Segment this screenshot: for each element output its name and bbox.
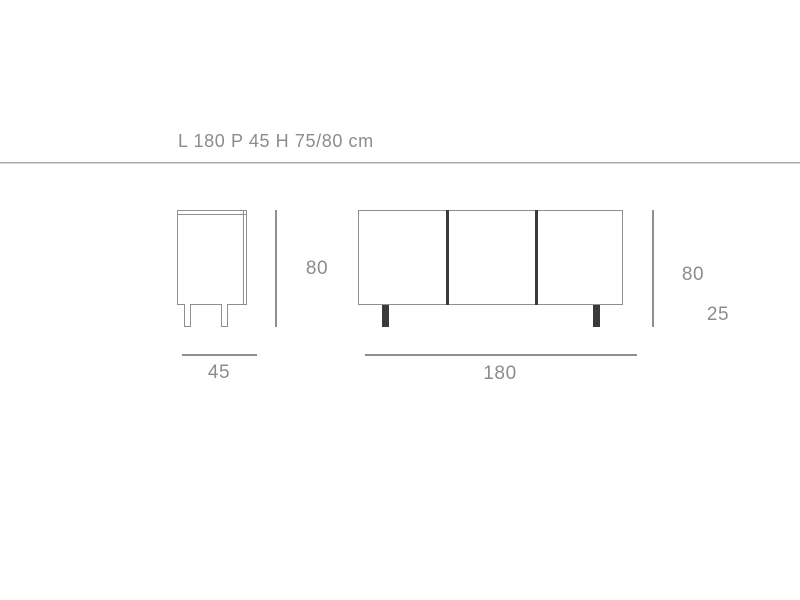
front-view-left-leg [382, 305, 389, 327]
front-view-body-outline [358, 210, 623, 305]
front-view-leg-height-label: 25 [696, 304, 740, 326]
separator-line [0, 162, 800, 164]
side-view-door-edge-line [243, 210, 245, 305]
side-view-height-dimension-line [275, 210, 277, 327]
side-view-depth-label: 45 [197, 362, 241, 384]
side-view-body-outline [177, 210, 247, 305]
side-view-left-leg [184, 304, 191, 327]
side-view-depth-dimension-line [182, 354, 257, 356]
side-view-height-label: 80 [295, 258, 339, 280]
front-view-right-leg [593, 305, 600, 327]
front-view-door-divider-right [535, 210, 538, 305]
furniture-dimension-sheet: L 180 P 45 H 75/80 cm 80 45 180 80 25 [0, 0, 800, 600]
front-view-width-label: 180 [478, 363, 522, 385]
front-view-height-label: 80 [671, 264, 715, 286]
side-view-top-panel-line [177, 214, 247, 216]
front-view-height-dimension-line [652, 210, 654, 327]
dimensions-title: L 180 P 45 H 75/80 cm [178, 131, 374, 152]
front-view-door-divider-left [446, 210, 449, 305]
front-view-width-dimension-line [365, 354, 637, 356]
side-view-right-leg [221, 304, 228, 327]
